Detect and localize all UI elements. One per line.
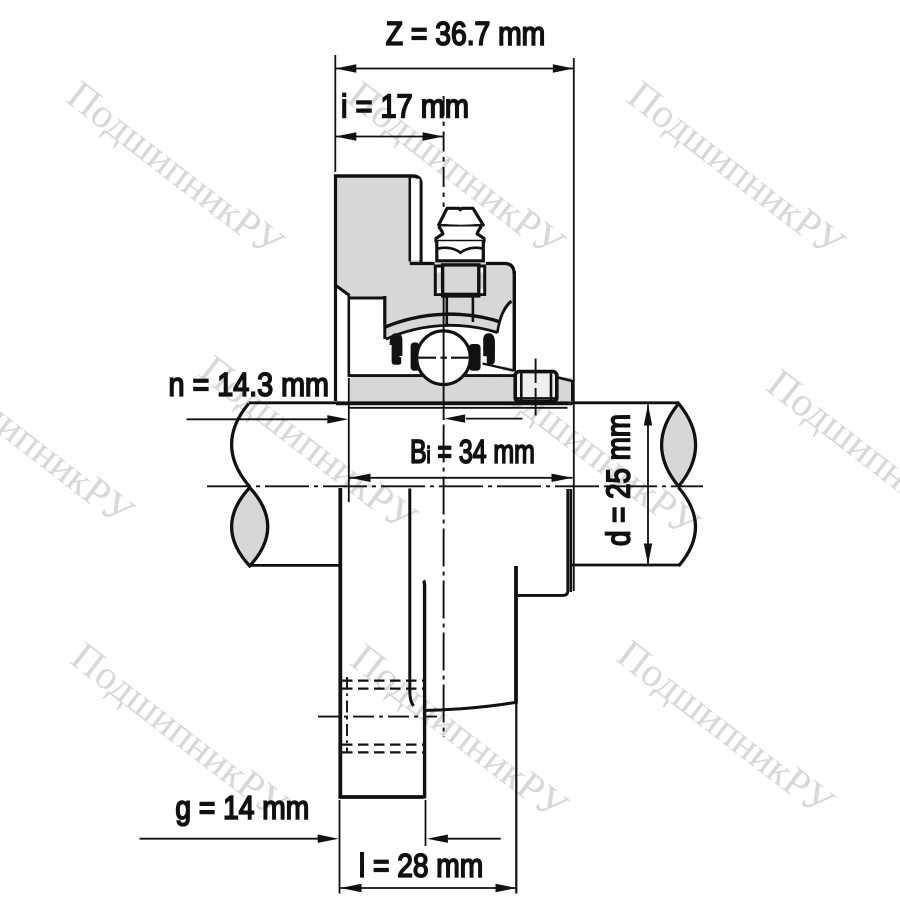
svg-text:n = 14.3 mm: n = 14.3 mm [168,366,329,403]
svg-text:l = 28 mm: l = 28 mm [359,847,483,884]
svg-text:d = 25 mm: d = 25 mm [599,414,636,546]
svg-text:Z = 36.7 mm: Z = 36.7 mm [386,15,545,52]
svg-text:i = 17 mm: i = 17 mm [341,87,469,124]
svg-text:g = 14 mm: g = 14 mm [175,789,309,826]
